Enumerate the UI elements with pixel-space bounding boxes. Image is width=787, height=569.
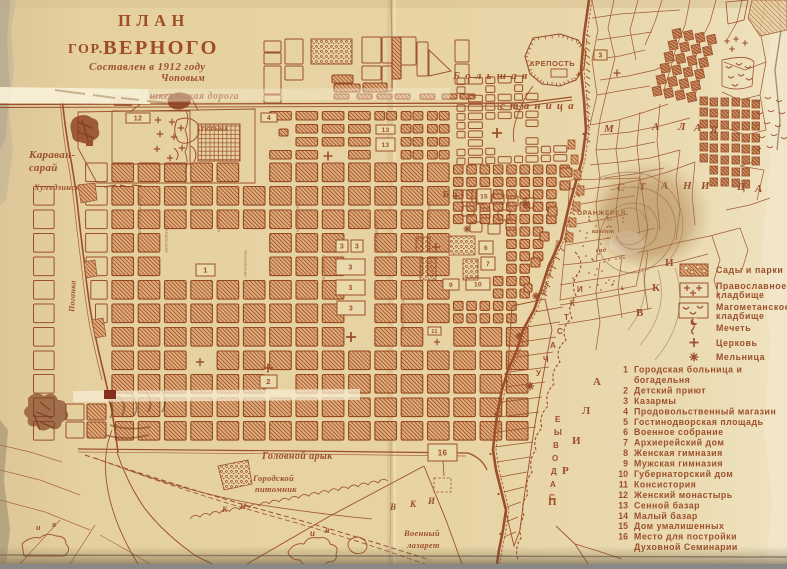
svg-text:11: 11 [431, 329, 437, 335]
svg-text:13: 13 [382, 127, 390, 134]
svg-text:Военное собрание: Военное собрание [634, 427, 724, 437]
svg-text:Городская больница и: Городская больница и [634, 365, 742, 375]
svg-text:КРЕПОСТЬ: КРЕПОСТЬ [530, 59, 575, 68]
svg-text:3: 3 [340, 244, 344, 251]
svg-text:3: 3 [349, 306, 353, 313]
svg-text:16: 16 [618, 532, 628, 542]
svg-text:Место для постройки: Место для постройки [634, 532, 737, 542]
svg-text:16: 16 [438, 448, 448, 457]
svg-text:я: я [51, 520, 56, 529]
svg-text:5: 5 [623, 417, 628, 427]
svg-text:Мужская гимназия: Мужская гимназия [634, 459, 723, 469]
svg-text:ТЮРЬМА: ТЮРЬМА [201, 127, 228, 133]
svg-text:Поганка: Поганка [67, 280, 78, 313]
svg-text:Ы: Ы [554, 428, 562, 437]
svg-text:С: С [549, 493, 555, 502]
svg-text:А: А [693, 122, 701, 134]
svg-text:7: 7 [486, 261, 490, 268]
svg-text:Малый базар: Малый базар [634, 511, 698, 521]
svg-text:Л: Л [582, 405, 591, 417]
svg-text:я: я [324, 525, 330, 535]
svg-text:Губернаторский дом: Губернаторский дом [634, 469, 733, 479]
svg-text:14: 14 [618, 511, 628, 521]
svg-text:А: А [550, 480, 556, 489]
svg-text:8: 8 [623, 448, 628, 458]
svg-text:4: 4 [267, 115, 271, 122]
svg-text:Составлен в 1912 году: Составлен в 1912 году [89, 61, 206, 73]
svg-text:9: 9 [623, 459, 628, 469]
svg-text:Церковь: Церковь [716, 338, 757, 348]
svg-text:10: 10 [474, 281, 482, 288]
svg-text:1: 1 [623, 365, 628, 375]
svg-text:А: А [754, 183, 762, 195]
svg-text:3: 3 [355, 244, 359, 251]
svg-text:Женская гимназия: Женская гимназия [633, 448, 723, 458]
svg-text:2: 2 [266, 377, 270, 386]
svg-text:Илийская: Илийская [217, 210, 223, 232]
svg-text:Городской: Городской [252, 473, 294, 483]
svg-text:К: К [570, 299, 575, 308]
svg-text:Ц: Ц [736, 181, 746, 193]
svg-text:В: В [553, 441, 559, 450]
svg-text:13: 13 [618, 500, 628, 510]
svg-text:кладбище: кладбище [716, 311, 765, 321]
svg-text:9: 9 [449, 282, 453, 289]
svg-text:и: и [310, 528, 315, 538]
svg-text:К: К [652, 282, 660, 294]
svg-text:О: О [552, 454, 558, 463]
svg-text:сарай: сарай [29, 162, 58, 174]
svg-text:Копальская: Копальская [164, 226, 169, 253]
svg-text:Сады и парки: Сады и парки [716, 265, 783, 275]
svg-text:ВЕРНОГО: ВЕРНОГО [103, 37, 219, 59]
svg-text:К: К [221, 505, 228, 514]
svg-text:7: 7 [623, 438, 628, 448]
svg-text:С: С [557, 327, 563, 336]
svg-text:15: 15 [480, 193, 488, 200]
svg-text:6: 6 [623, 427, 628, 437]
svg-text:Д: Д [551, 467, 557, 476]
svg-text:Торговая: Торговая [427, 200, 432, 221]
svg-text:Сенной базар: Сенной базар [634, 500, 700, 510]
svg-text:1: 1 [203, 266, 207, 275]
svg-text:Лепсинская: Лепсинская [243, 250, 248, 277]
svg-text:Мечеть: Мечеть [716, 323, 751, 333]
svg-text:6: 6 [484, 245, 488, 252]
svg-text:богадельня: богадельня [634, 375, 690, 385]
svg-text:12: 12 [134, 116, 142, 123]
svg-text:Я: Я [709, 124, 718, 136]
svg-text:Консистория: Консистория [634, 479, 696, 489]
svg-text:4: 4 [623, 406, 628, 416]
svg-text:Б: Б [443, 190, 449, 199]
svg-text:М: М [603, 123, 615, 135]
svg-text:Е: Е [555, 415, 561, 424]
svg-text:Таранчинская: Таранчинская [295, 200, 300, 232]
svg-text:3: 3 [348, 285, 352, 292]
svg-text:15: 15 [618, 521, 628, 531]
svg-text:Л: Л [677, 121, 686, 133]
svg-text:Детский приют: Детский приют [634, 385, 706, 395]
svg-text:питомник: питомник [255, 484, 297, 494]
svg-text:К: К [409, 499, 417, 509]
svg-text:Казармы: Казармы [634, 396, 676, 406]
svg-text:Продовольственный магазин: Продовольственный магазин [634, 406, 776, 416]
svg-text:ГОР.: ГОР. [68, 42, 104, 57]
svg-text:Мельница: Мельница [716, 352, 765, 362]
svg-text:Архиерейский дом: Архиерейский дом [634, 438, 724, 448]
svg-text:Женский монастырь: Женский монастырь [633, 490, 733, 500]
svg-text:И: И [572, 435, 581, 447]
svg-text:Гостинодворская площадь: Гостинодворская площадь [634, 417, 764, 427]
svg-text:Казарменная: Казарменная [401, 300, 406, 331]
svg-text:Сергиопольская: Сергиопольская [138, 196, 143, 234]
svg-text:Кульджинская: Кульджинская [374, 220, 379, 253]
svg-text:И: И [427, 496, 436, 506]
svg-text:ПЛАН: ПЛАН [118, 11, 190, 30]
svg-text:Р: Р [562, 465, 569, 477]
svg-text:Б о л ь ш а я: Б о л ь ш а я [452, 70, 529, 82]
svg-text:кладбище: кладбище [716, 290, 765, 300]
svg-text:12: 12 [618, 490, 628, 500]
svg-text:Головной арык: Головной арык [261, 451, 333, 462]
svg-text:И: И [577, 285, 583, 294]
svg-text:10: 10 [618, 469, 628, 479]
svg-text:Ч: Ч [543, 355, 549, 364]
svg-text:И: И [239, 502, 247, 511]
svg-text:В: В [636, 307, 644, 319]
svg-text:В: В [389, 502, 396, 512]
svg-text:А: А [651, 121, 659, 133]
svg-text:Чоповым: Чоповым [161, 73, 205, 84]
svg-text:11: 11 [619, 479, 628, 489]
svg-text:и: и [36, 523, 41, 532]
svg-text:А: А [550, 341, 556, 350]
svg-text:Сараевская: Сараевская [322, 255, 327, 283]
svg-text:Военный: Военный [403, 528, 440, 538]
svg-text:2: 2 [623, 385, 628, 395]
svg-text:Т: Т [564, 313, 569, 322]
svg-text:3: 3 [348, 265, 352, 272]
svg-text:3: 3 [623, 396, 628, 406]
svg-text:13: 13 [382, 142, 390, 149]
svg-text:3: 3 [598, 53, 602, 60]
svg-text:с т а н и ц а: с т а н и ц а [500, 100, 575, 112]
svg-text:Дом умалишенных: Дом умалишенных [634, 521, 724, 531]
svg-text:А: А [593, 376, 601, 388]
